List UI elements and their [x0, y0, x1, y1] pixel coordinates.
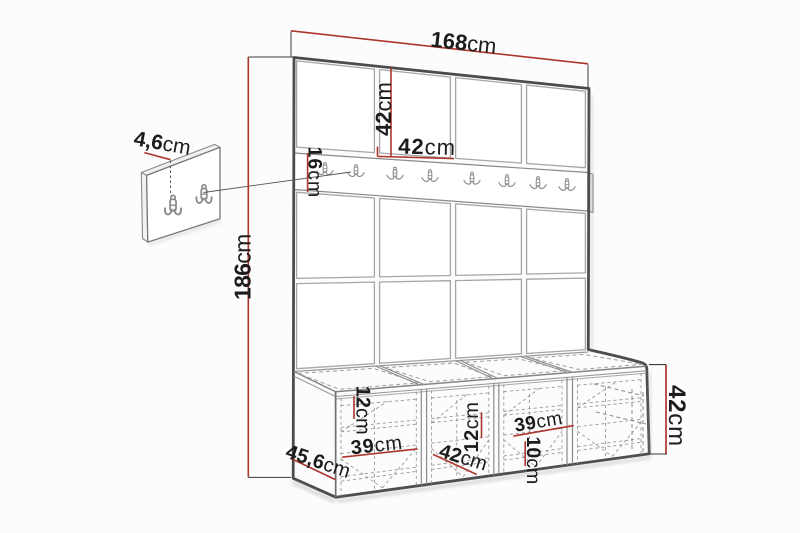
svg-text:12cm: 12cm: [352, 386, 374, 435]
svg-text:42cm: 42cm: [398, 134, 456, 161]
svg-text:10cm: 10cm: [522, 437, 544, 485]
svg-text:42cm: 42cm: [663, 385, 690, 447]
svg-text:12cm: 12cm: [461, 402, 483, 453]
svg-text:16cm: 16cm: [304, 147, 326, 199]
svg-text:42cm: 42cm: [371, 82, 396, 136]
svg-text:186cm: 186cm: [230, 234, 256, 300]
